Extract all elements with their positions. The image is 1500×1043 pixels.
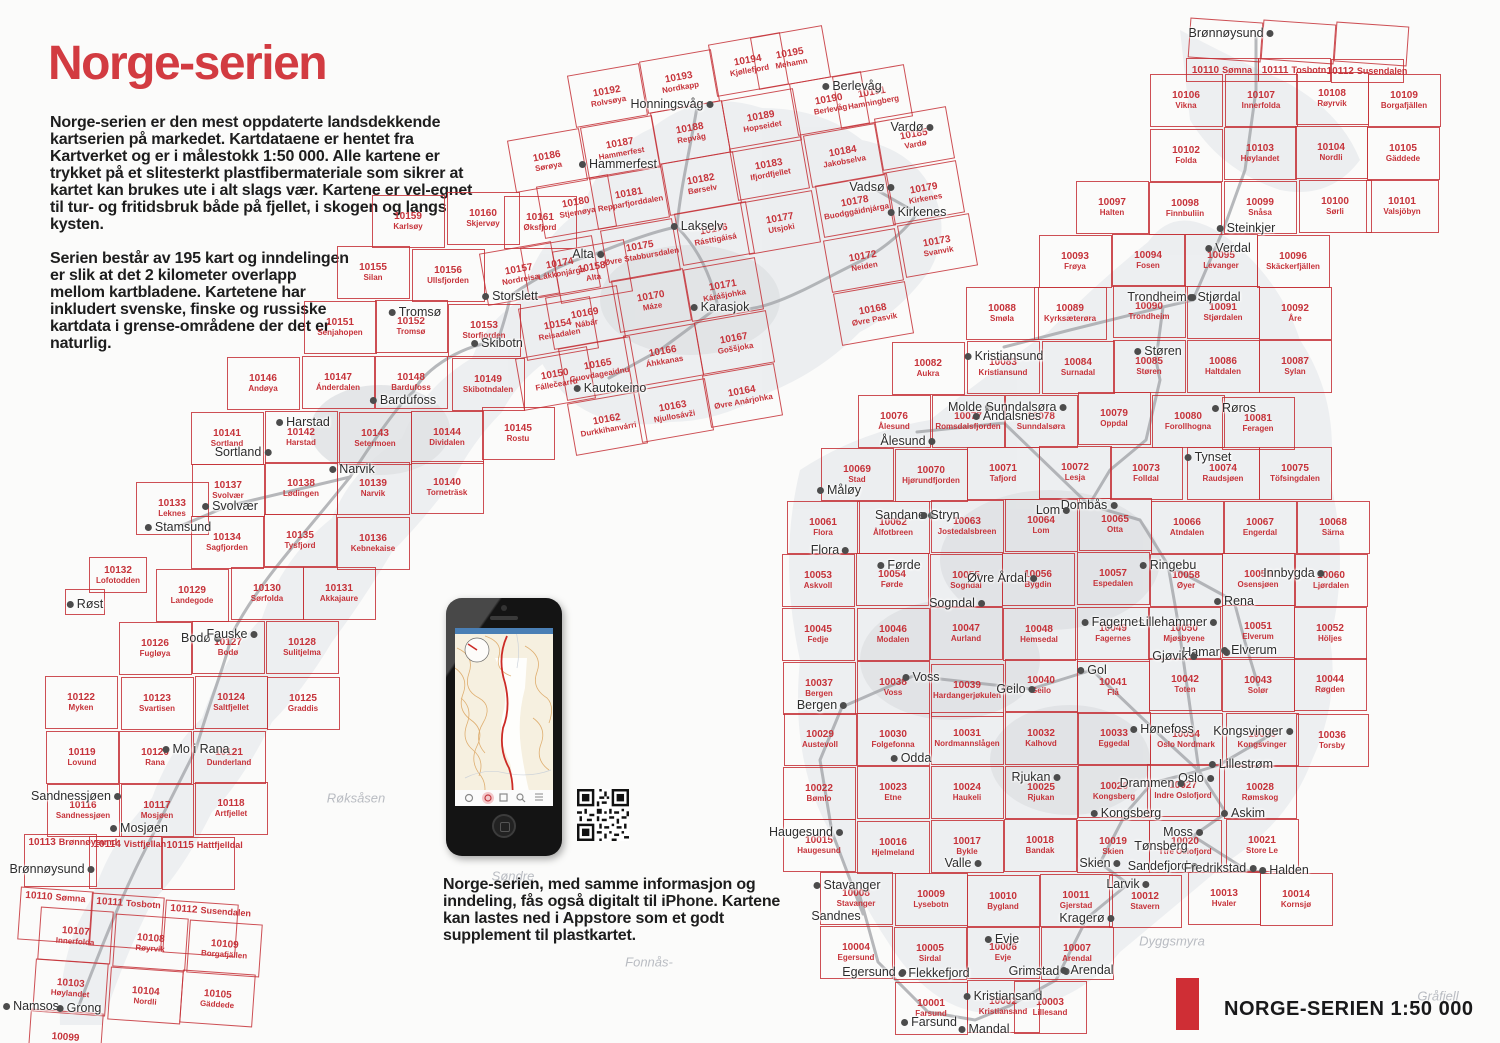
town-name: Grong xyxy=(67,1001,102,1015)
sheet-name: Tafjord xyxy=(990,474,1017,483)
sheet-name: Kalhovd xyxy=(1025,739,1057,748)
sheet-number: 10080 xyxy=(1174,411,1202,422)
map-cell-10109: 10109Borgafjällen xyxy=(1368,74,1441,127)
map-cell-10105: 10105Gäddede xyxy=(179,969,256,1027)
town-label: Grong xyxy=(57,1001,102,1015)
sheet-number: 10149 xyxy=(474,374,502,385)
town-name: Arendal xyxy=(1070,963,1113,977)
sheet-number: 10144 xyxy=(433,427,461,438)
iphone-earpiece xyxy=(490,616,518,620)
town-dot-icon xyxy=(329,466,336,473)
map-cell-10070: 10070Hjørundfjorden xyxy=(895,449,968,502)
sheet-name: Høylandet xyxy=(1241,154,1280,163)
sheet-name: Sulitjelma xyxy=(283,648,321,657)
sheet-name: Skibotndalen xyxy=(463,385,513,394)
sheet-number: 10031 xyxy=(953,728,981,739)
sheet-name: Elverum xyxy=(1242,632,1274,641)
brochure-page: Norge-serien Norge-serien er den mest op… xyxy=(0,0,1500,1043)
map-cell-10032: 10032Kalhovd xyxy=(1005,712,1078,765)
sheet-number: 10004 xyxy=(842,942,870,953)
town-name: Røros xyxy=(1222,401,1256,415)
town-name: Lillehammer xyxy=(1139,615,1207,629)
map-cell-10129: 10129Landegode xyxy=(156,569,229,622)
sheet-name: Rømskog xyxy=(1242,793,1278,802)
sheet-name: Kyrksæterøra xyxy=(1044,314,1096,323)
sheet-number: 10105 xyxy=(1389,143,1417,154)
sheet-name: Valsjöbyn xyxy=(1383,207,1420,216)
sheet-name: Rostu xyxy=(507,434,530,443)
map-cell-10033: 10033Eggedal xyxy=(1078,712,1151,765)
town-label: Geilo xyxy=(996,682,1035,696)
sheet-number: 10045 xyxy=(804,624,832,635)
town-name: Harstad xyxy=(286,415,330,429)
sheet-name: Ålfotbreen xyxy=(873,528,913,537)
map-cell-10047: 10047Aurland xyxy=(930,607,1003,660)
map-cell-10038: 10038Voss xyxy=(857,661,930,714)
map-cell-10075: 10075Töfsingdalen xyxy=(1259,447,1332,500)
town-label: Voss xyxy=(902,670,939,684)
sheet-name: Egersund xyxy=(838,953,875,962)
town-dot-icon xyxy=(163,746,170,753)
town-label: Narvik xyxy=(329,462,374,476)
sheet-number: 10100 xyxy=(1321,196,1349,207)
town-label: Larvik xyxy=(1106,877,1149,891)
sheet-number: 10093 xyxy=(1061,251,1089,262)
town-dot-icon xyxy=(276,419,283,426)
town-label: Mandal xyxy=(959,1022,1010,1036)
sheet-number: 10148 xyxy=(397,372,425,383)
sheet-number: 10155 xyxy=(359,262,387,273)
town-name: Egersund xyxy=(842,965,896,979)
sheet-name: Raudsjøen xyxy=(1203,474,1244,483)
map-cell-10052: 10052Höljes xyxy=(1294,607,1367,660)
sheet-number: 10041 xyxy=(1099,677,1127,688)
town-label: Flekkefjord xyxy=(898,966,969,980)
map-cell-10010: 10010Bygland xyxy=(967,875,1040,928)
map-cell-10046: 10046Modalen xyxy=(857,608,930,661)
sheet-number: 10139 xyxy=(359,478,387,489)
town-dot-icon xyxy=(965,353,972,360)
town-dot-icon xyxy=(814,882,821,889)
sheet-number: 10102 xyxy=(1172,145,1200,156)
sheet-name: Saltfjellet xyxy=(213,703,249,712)
town-name: Innbygda xyxy=(1263,566,1314,580)
sheet-name: Mosjøen xyxy=(141,811,173,820)
sheet-number: 10019 xyxy=(1099,836,1127,847)
sheet-number: 10159 xyxy=(394,211,422,222)
sheet-name: Haukeli xyxy=(953,793,981,802)
map-cell-10060: 10060Ljørdalen xyxy=(1295,554,1368,607)
town-label: Arendal xyxy=(1060,963,1113,977)
map-cell-10123: 10123Svartisen xyxy=(121,677,194,730)
map-cell-10036: 10036Torsby xyxy=(1296,714,1369,767)
town-name: Kristiansund xyxy=(975,349,1044,363)
map-cell-10043: 10043Solør xyxy=(1222,659,1295,712)
sheet-name: Fedje xyxy=(808,635,829,644)
town-label: Lakselv xyxy=(671,219,723,233)
map-cell-10125: 10125Graddis xyxy=(267,677,340,730)
town-dot-icon xyxy=(1221,647,1228,654)
sheet-name: Gjerstad xyxy=(1060,901,1092,910)
map-cell-10144: 10144Dividalen xyxy=(411,411,484,464)
town-label: Kragerø xyxy=(1059,911,1114,925)
sheet-number: 10106 xyxy=(1172,90,1200,101)
map-cell-10151: 10151Senjahopen xyxy=(304,301,377,354)
town-name: Larvik xyxy=(1106,877,1139,891)
map-cell-10107: 10107Innerfolda xyxy=(37,906,114,964)
sheet-name: Alta xyxy=(585,271,601,282)
town-dot-icon xyxy=(888,184,895,191)
town-label: Namsos xyxy=(3,999,59,1013)
town-dot-icon xyxy=(1318,570,1325,577)
sheet-number: 10108 xyxy=(1318,88,1346,99)
town-name: Vardø xyxy=(890,120,923,134)
sheet-number: 10036 xyxy=(1318,730,1346,741)
page-title: Norge-serien xyxy=(48,36,326,91)
sheet-number: 10052 xyxy=(1316,623,1344,634)
town-dot-icon xyxy=(973,413,980,420)
town-label: Tynset xyxy=(1185,450,1232,464)
sheet-name: Mjøsbyene xyxy=(1163,634,1204,643)
town-label: Røst xyxy=(67,597,103,611)
sheet-name: Akkajaure xyxy=(320,594,358,603)
map-cell-10130: 10130Sørfolda xyxy=(231,567,304,620)
town-label: Alta xyxy=(572,247,604,261)
sheet-name: Kongsvinger xyxy=(1238,740,1287,749)
town-name: Tønsberg xyxy=(1134,839,1188,853)
sheet-number: 10043 xyxy=(1244,675,1272,686)
town-label: Berlevåg xyxy=(822,79,881,93)
town-label: Kristiansand xyxy=(964,989,1043,1003)
town-dot-icon xyxy=(974,860,981,867)
town-label: Rena xyxy=(1214,594,1254,608)
town-label: Rjukan xyxy=(1012,770,1061,784)
town-dot-icon xyxy=(920,512,927,519)
sheet-name: Hjørundfjorden xyxy=(902,476,960,485)
sheet-number: 10110 xyxy=(24,889,52,902)
sheet-name: Finnbuliin xyxy=(1166,209,1204,218)
sheet-name: Hjelmeland xyxy=(872,848,915,857)
sheet-name: Borgafjällen xyxy=(1381,101,1427,110)
map-cell-10120: 10120Rana xyxy=(119,731,192,784)
sheet-name: Rjukan xyxy=(1028,793,1055,802)
sheet-number: 10021 xyxy=(1248,835,1276,846)
town-name: Sogndal xyxy=(929,596,975,610)
sheet-number: 10124 xyxy=(217,692,245,703)
map-cell-10161: 10161Øksfjord xyxy=(504,196,577,249)
sheet-name: Lofotodden xyxy=(96,576,140,585)
sheet-name: Stavanger xyxy=(837,899,876,908)
sheet-number: 10107 xyxy=(1247,90,1275,101)
map-cell-10118: 10118Artfjellet xyxy=(195,782,268,835)
town-label: Gjøvik xyxy=(1152,649,1197,663)
map-cell-10156: 10156Ullsfjorden xyxy=(412,249,485,302)
town-name: Skibotn xyxy=(481,336,523,350)
faint-map-label: Dyggsmyra xyxy=(1139,934,1205,949)
sheet-name: Oslo Nordmark xyxy=(1157,740,1215,749)
map-cell-10009: 10009Lysebotn xyxy=(895,873,968,926)
sheet-name: Rana xyxy=(145,758,165,767)
iphone-map-app xyxy=(455,628,553,806)
sheet-name: Sunndalsøra xyxy=(1017,422,1065,431)
sheet-number: 10057 xyxy=(1099,568,1127,579)
map-cell-10066: 10066Atndalen xyxy=(1151,501,1224,554)
sheet-name: Senjahopen xyxy=(317,328,362,337)
map-cell-10107: 10107Innerfolda xyxy=(1225,74,1298,127)
sheet-number: 10156 xyxy=(434,265,462,276)
town-label: Vardø xyxy=(890,120,933,134)
map-cell-10147: 10147Ánderdalen xyxy=(302,356,375,409)
map-cell-10143: 10143Setermoen xyxy=(339,412,412,465)
town-dot-icon xyxy=(1191,653,1198,660)
town-name: Geilo xyxy=(996,682,1025,696)
town-label: Harstad xyxy=(276,415,330,429)
sheet-name: Askvoll xyxy=(804,581,832,590)
sheet-name: Voss xyxy=(884,688,903,697)
map-cell-10057: 10057Espedalen xyxy=(1077,552,1150,605)
sheet-name: Aukra xyxy=(917,369,940,378)
map-cell-10104: 10104Nordli xyxy=(1295,126,1368,179)
town-name: Mandal xyxy=(969,1022,1010,1036)
town-name: Hammerfest xyxy=(589,157,657,171)
map-cell-10104: 10104Nordli xyxy=(107,966,184,1024)
town-dot-icon xyxy=(691,304,698,311)
sheet-number: 10007 xyxy=(1063,943,1091,954)
sheet-number: 10051 xyxy=(1244,621,1272,632)
sheet-number: 10096 xyxy=(1279,251,1307,262)
town-label: Kongsberg xyxy=(1091,806,1161,820)
town-name: Grimstad xyxy=(1009,964,1060,978)
town-label: Stjørdal xyxy=(1187,290,1240,304)
sheet-number: 10072 xyxy=(1061,462,1089,473)
town-name: Lom xyxy=(1036,503,1060,517)
town-label: Kongsvinger xyxy=(1213,724,1293,738)
town-dot-icon xyxy=(1267,30,1274,37)
town-name: Tynset xyxy=(1195,450,1232,464)
town-label: Stryn xyxy=(920,508,959,522)
town-name: Odda xyxy=(901,751,932,765)
sheet-number: 10033 xyxy=(1100,728,1128,739)
sheet-number: 10048 xyxy=(1025,624,1053,635)
sheet-name: Flå xyxy=(1107,688,1119,697)
town-name: Haugesund xyxy=(769,825,833,839)
map-cell-10094: 10094Fosen xyxy=(1112,234,1185,287)
town-dot-icon xyxy=(836,829,843,836)
town-name: Sandnessjøen xyxy=(31,789,111,803)
sheet-name: Førde xyxy=(881,580,903,589)
sheet-name: Etne xyxy=(884,793,901,802)
sheet-name: Sagfjorden xyxy=(206,543,248,552)
town-label: Ringebu xyxy=(1140,558,1197,572)
town-name: Stjørdal xyxy=(1197,290,1240,304)
sheet-name: Jostedalsbreen xyxy=(938,527,997,536)
sheet-number: 10068 xyxy=(1319,517,1347,528)
town-name: Kongsvinger xyxy=(1213,724,1283,738)
sheet-name: Aurland xyxy=(951,634,981,643)
sheet-number: 10066 xyxy=(1173,517,1201,528)
map-cell-10102: 10102Folda xyxy=(1150,129,1223,182)
town-dot-icon xyxy=(251,631,258,638)
sheet-name: Gäddede xyxy=(1386,154,1420,163)
sheet-name: Sylan xyxy=(1284,367,1305,376)
sheet-name: Røgden xyxy=(1315,685,1345,694)
sheet-number: 10114 xyxy=(94,839,121,850)
map-cell-10053: 10053Askvoll xyxy=(782,554,855,607)
faint-map-label: Røksåsen xyxy=(327,791,386,806)
town-name: Sandefjord xyxy=(1128,859,1188,873)
town-name: Elverum xyxy=(1231,643,1277,657)
sheet-name: Sandnessjøen xyxy=(56,811,110,820)
sheet-number: 10119 xyxy=(68,747,95,758)
sheet-name: Røyrvik xyxy=(135,942,165,953)
town-label: Sogndal xyxy=(929,596,985,610)
sheet-name: Atndalen xyxy=(1170,528,1204,537)
town-name: Rena xyxy=(1224,594,1254,608)
map-cell-10042: 10042Toten xyxy=(1149,658,1222,711)
sheet-name: Hattfjelldal xyxy=(197,840,243,851)
sheet-name: Ullsfjorden xyxy=(427,276,469,285)
town-label: Øvre Årdal xyxy=(967,571,1037,585)
sheet-name: Feragen xyxy=(1242,424,1273,433)
town-dot-icon xyxy=(1108,915,1115,922)
town-label: Mo i Rana xyxy=(163,742,230,756)
town-dot-icon xyxy=(978,600,985,607)
sheet-name: Sørli xyxy=(1326,207,1344,216)
sheet-number: 10146 xyxy=(249,373,277,384)
sheet-number: 10086 xyxy=(1209,356,1237,367)
map-cell-10135: 10135Tysfjord xyxy=(264,514,337,567)
town-label: Hønefoss xyxy=(1130,722,1194,736)
sheet-name: Modalen xyxy=(877,635,909,644)
town-name: Ringebu xyxy=(1150,558,1197,572)
map-cell-10013: 10013Hvaler xyxy=(1188,872,1261,925)
sheet-name: Torneträsk xyxy=(427,488,468,497)
town-name: Voss xyxy=(912,670,939,684)
town-dot-icon xyxy=(1207,775,1214,782)
sheet-number: 10128 xyxy=(288,637,316,648)
town-dot-icon xyxy=(88,866,95,873)
map-cell-10086: 10086Haltdalen xyxy=(1187,340,1260,393)
map-cell-10048: 10048Hemsedal xyxy=(1003,608,1076,661)
town-dot-icon xyxy=(959,1026,966,1033)
map-cell-10121: 10121Dunderland xyxy=(193,731,266,784)
town-label: Bardufoss xyxy=(370,393,436,407)
map-cell-10067: 10067Engerdal xyxy=(1224,501,1297,554)
town-dot-icon xyxy=(114,793,121,800)
town-dot-icon xyxy=(706,101,713,108)
sheet-number: 10112 xyxy=(169,902,197,915)
sheet-name: Innerfolda xyxy=(1242,101,1281,110)
sheet-number: 10042 xyxy=(1171,674,1199,685)
sheet-number: 10084 xyxy=(1064,357,1092,368)
sheet-number: 10130 xyxy=(253,583,281,594)
town-dot-icon xyxy=(1053,774,1060,781)
sheet-number: 10047 xyxy=(952,623,980,634)
sheet-name: Smøla xyxy=(990,314,1014,323)
faint-map-label: Fonnås- xyxy=(625,955,673,970)
town-name: Kautokeino xyxy=(584,381,647,395)
map-cell-10031: 10031Nordmannslågen xyxy=(931,712,1004,765)
sheet-name: Arendal xyxy=(1062,954,1092,963)
sheet-number: 10161 xyxy=(526,212,554,223)
sheet-name: Silan xyxy=(363,273,382,282)
town-dot-icon xyxy=(888,209,895,216)
town-name: Mosjøen xyxy=(120,821,168,835)
map-cell-10092: 10092Åre xyxy=(1259,287,1332,340)
town-dot-icon xyxy=(370,397,377,404)
map-cell-10029: 10029Austevoll xyxy=(784,713,857,766)
town-dot-icon xyxy=(899,969,906,976)
map-cell-10103: 10103Høylandet xyxy=(1224,127,1297,180)
sheet-name: Torsby xyxy=(1319,741,1345,750)
sheet-number: 10044 xyxy=(1316,674,1344,685)
sheet-name: Vikna xyxy=(1175,101,1196,110)
town-name: Lillestrøm xyxy=(1219,757,1273,771)
town-dot-icon xyxy=(1212,405,1219,412)
sheet-name: Myken xyxy=(69,703,94,712)
sheet-name: Fosen xyxy=(1136,261,1160,270)
town-label: Elverum xyxy=(1221,643,1277,657)
sheet-number: 10132 xyxy=(104,565,132,576)
sheet-name: Ljørdalen xyxy=(1313,581,1349,590)
map-cell-10101: 10101Valsjöbyn xyxy=(1366,180,1439,233)
sheet-name: Nordli xyxy=(1319,153,1342,162)
sheet-name: Lovund xyxy=(68,758,97,767)
town-dot-icon xyxy=(1059,404,1066,411)
town-label: Bergen xyxy=(797,698,847,712)
sheet-name: Andøya xyxy=(248,384,277,393)
town-name: Hønefoss xyxy=(1140,722,1194,736)
town-dot-icon xyxy=(1114,860,1121,867)
town-name: Stamsund xyxy=(155,520,211,534)
town-dot-icon xyxy=(1060,967,1067,974)
sheet-name: Tosbotn xyxy=(125,897,161,910)
sheet-number: 10097 xyxy=(1098,197,1126,208)
sheet-name: Tromsø xyxy=(397,327,426,336)
town-label: Tønsberg xyxy=(1134,839,1188,853)
sheet-name: Surnadal xyxy=(1061,368,1095,377)
sheet-name: Skäckerfjällen xyxy=(1266,262,1320,271)
sheet-number: 10001 xyxy=(917,998,945,1009)
map-cell-10105: 10105Gäddede xyxy=(1367,127,1440,180)
sheet-number: 10013 xyxy=(1210,888,1238,899)
map-cell-10126: 10126Fugløya xyxy=(119,622,192,675)
town-name: Ålesund xyxy=(880,434,925,448)
sheet-name: Folgefonna xyxy=(871,740,914,749)
sheet-number: 10067 xyxy=(1246,517,1274,528)
town-label: Evje xyxy=(985,932,1019,946)
town-dot-icon xyxy=(901,1019,908,1026)
map-cell-10138: 10138Lødingen xyxy=(265,462,338,515)
iphone-camera xyxy=(501,605,507,611)
town-name: Sortland xyxy=(215,445,262,459)
town-label: Kautokeino xyxy=(574,381,647,395)
sheet-number: 10009 xyxy=(917,889,945,900)
town-dot-icon xyxy=(264,449,271,456)
map-cell-10071: 10071Tafjord xyxy=(967,447,1040,500)
sheet-name: Skien xyxy=(1102,847,1123,856)
map-cell-10089: 10089Kyrksæterøra xyxy=(1034,287,1107,340)
town-name: Valle xyxy=(945,856,972,870)
town-label: Stavanger xyxy=(814,878,881,892)
town-dot-icon xyxy=(1196,829,1203,836)
town-dot-icon xyxy=(964,993,971,1000)
town-name: Kristiansand xyxy=(974,989,1043,1003)
town-dot-icon xyxy=(902,674,909,681)
town-dot-icon xyxy=(671,223,678,230)
sheet-name: Skjervøy xyxy=(466,219,499,228)
sheet-name: Otta xyxy=(1107,525,1123,534)
